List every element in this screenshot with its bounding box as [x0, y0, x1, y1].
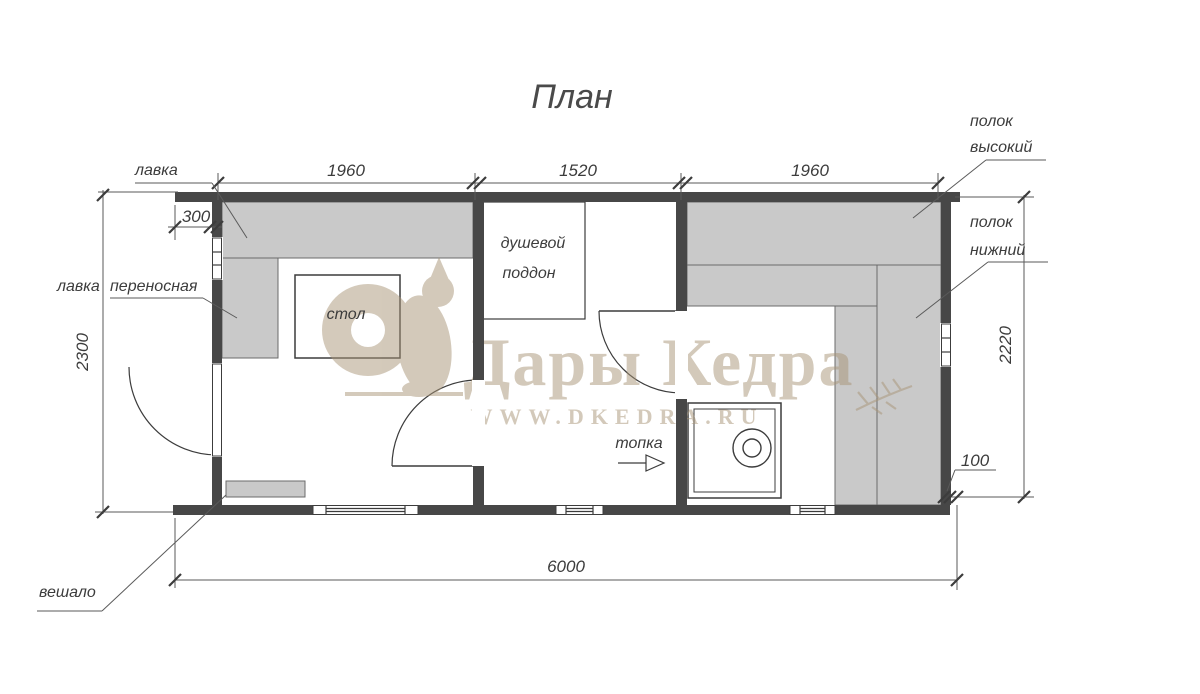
stove-chimney-outer [733, 429, 771, 467]
hanger-rack [226, 481, 305, 497]
window-bottom-2 [556, 506, 603, 515]
plan-svg: Дары Кедра WWW.DKEDRA.RU [0, 0, 1200, 694]
label-shelf-low-2: нижний [970, 242, 1025, 259]
window-bottom-1 [313, 506, 418, 515]
entry-door-leaf [213, 364, 222, 456]
label-shelf-high-2: высокий [970, 139, 1032, 156]
shelf-high [687, 202, 941, 265]
dim-total-length: 6000 [547, 557, 585, 576]
shower-tray [483, 202, 585, 319]
window-bottom-3 [790, 506, 835, 515]
dim-inset-right: 100 [961, 451, 990, 470]
page-title: План [531, 78, 613, 116]
label-shelf-low-1: полок [970, 214, 1014, 231]
dim-width-outer: 2300 [73, 333, 92, 372]
shelf-low-column [877, 265, 941, 505]
watermark-url: WWW.DKEDRA.RU [470, 404, 763, 429]
bench-portable [222, 258, 278, 358]
entry-door-arc [129, 367, 217, 455]
label-shower-1: душевой [501, 235, 566, 252]
floor-plan-drawing: Дары Кедра WWW.DKEDRA.RU [0, 0, 1200, 694]
label-firebox: топка [615, 435, 662, 452]
window-right-wall [940, 323, 952, 367]
wall-top [175, 192, 960, 202]
shelf-low-band [687, 265, 877, 306]
window-left-wall [211, 237, 223, 280]
label-table: стол [327, 306, 366, 323]
firebox-arrow-icon [618, 455, 664, 471]
label-shelf-high-1: полок [970, 113, 1014, 130]
label-bench-portable-1: лавка [56, 278, 100, 295]
dim-inset-left: 300 [182, 207, 211, 226]
label-hanger: вешало [39, 584, 96, 601]
watermark-brand: Дары Кедра [464, 324, 855, 400]
room1-door-opening [472, 380, 485, 466]
dim-seg3: 1960 [791, 161, 829, 180]
label-bench: лавка [134, 162, 178, 179]
label-shower-2: поддон [502, 265, 555, 282]
label-bench-portable-2: переносная [110, 278, 198, 295]
bench-top [222, 202, 473, 258]
dim-seg1: 1960 [327, 161, 365, 180]
steam-door-opening [675, 311, 688, 399]
dim-seg2: 1520 [559, 161, 597, 180]
dim-width-inner: 2220 [996, 326, 1015, 365]
